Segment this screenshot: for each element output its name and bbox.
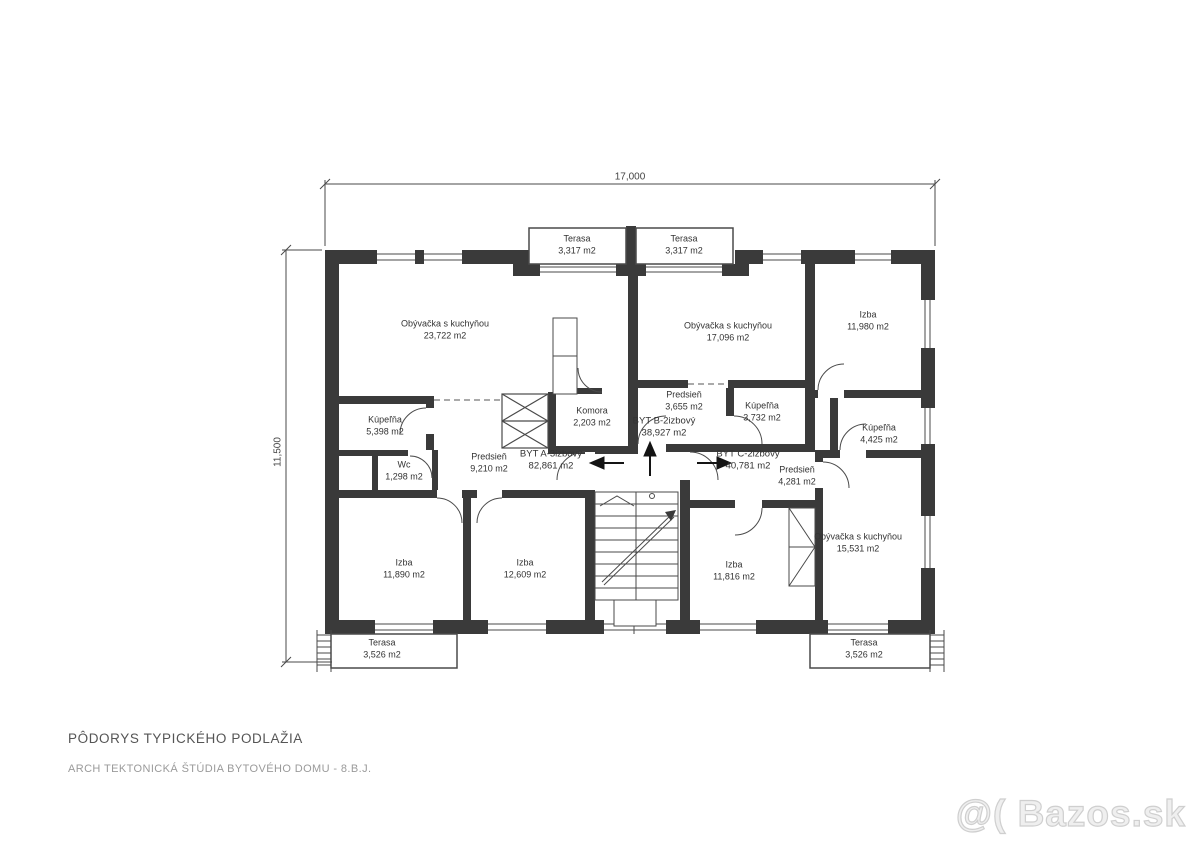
room-label-kupelna-c: Kúpeľňa4,425 m2 <box>860 422 898 445</box>
apartment-label-byt-c: BYT C-2izbový40,781 m2 <box>716 449 779 474</box>
room-label-predsien-a: Predsieň9,210 m2 <box>470 451 508 474</box>
room-label-terasa-top-left: Terasa3,317 m2 <box>558 233 596 256</box>
dimension-width-label: 17,000 <box>615 172 646 183</box>
room-label-terasa-top-right: Terasa3,317 m2 <box>665 233 703 256</box>
drawing-title: PÔDORYS TYPICKÉHO PODLAŽIA <box>68 731 303 746</box>
apartment-label-byt-a: BYT A-3izbový82,861 m2 <box>520 449 582 474</box>
room-label-izba-bottom-left: Izba11,890 m2 <box>383 557 425 580</box>
room-label-terasa-bottom-right: Terasa3,526 m2 <box>845 637 883 660</box>
room-label-wc: Wc1,298 m2 <box>385 459 423 482</box>
room-label-terasa-bottom-left: Terasa3,526 m2 <box>363 637 401 660</box>
byt-b-arrowhead-icon <box>644 442 656 456</box>
staircase <box>595 492 678 626</box>
room-label-komora: Komora2,203 m2 <box>573 405 611 428</box>
bazos-watermark: @( Bazos.sk <box>956 793 1186 835</box>
room-label-kupelna-a: Kúpeľňa5,398 m2 <box>366 414 404 437</box>
room-label-izba-top-right: Izba11,980 m2 <box>847 309 889 332</box>
elevator-shaft <box>502 394 548 448</box>
apartment-label-byt-b: BYT B-2izbový38,927 m2 <box>633 416 696 441</box>
room-label-izba-bottom-right: Izba11,816 m2 <box>713 559 755 582</box>
room-label-predsien-c: Predsieň4,281 m2 <box>778 464 816 487</box>
room-label-living-b: Obývačka s kuchyňou17,096 m2 <box>684 320 772 343</box>
floor-plan-page: 17,000 11,500 Terasa3,317 m2 Terasa3,317… <box>0 0 1200 849</box>
room-label-predsien-b: Predsieň3,655 m2 <box>665 389 703 412</box>
dimension-height-label: 11,500 <box>273 437 284 467</box>
room-label-kupelna-b: Kúpeľňa3,732 m2 <box>743 400 781 423</box>
drawing-subtitle: ARCH TEKTONICKÁ ŠTÚDIA BYTOVÉHO DOMU - 8… <box>68 763 371 775</box>
room-label-izba-bottom-mid: Izba12,609 m2 <box>504 557 547 580</box>
room-label-living-c: Obývačka s kuchyňou15,531 m2 <box>814 531 902 554</box>
room-label-living-a: Obývačka s kuchyňou23,722 m2 <box>401 318 489 341</box>
